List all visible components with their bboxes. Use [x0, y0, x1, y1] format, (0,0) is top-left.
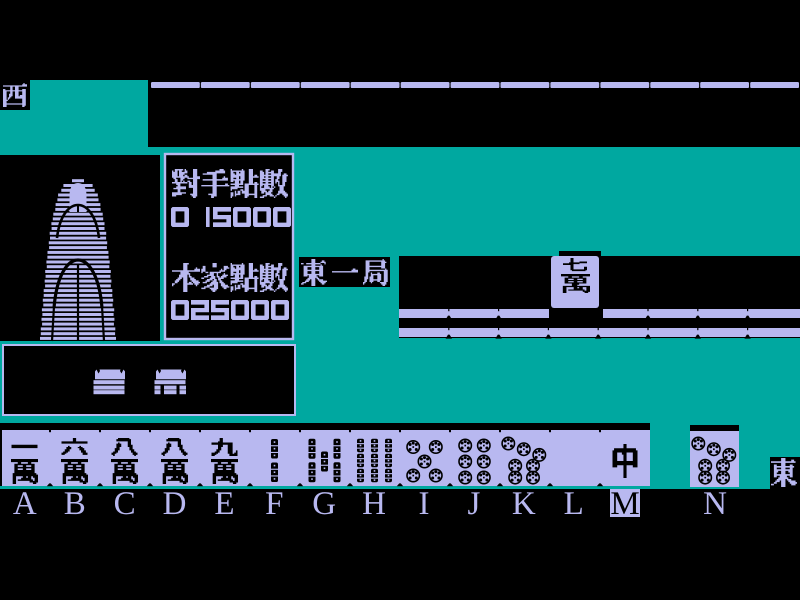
svg-text:K: K — [512, 486, 536, 522]
svg-text:J: J — [467, 486, 480, 522]
svg-text:F: F — [265, 486, 283, 522]
svg-text:H: H — [362, 486, 386, 522]
svg-text:M: M — [610, 486, 639, 522]
svg-text:G: G — [312, 486, 336, 522]
svg-text:L: L — [564, 486, 584, 522]
svg-text:D: D — [163, 486, 187, 522]
svg-text:B: B — [64, 486, 86, 522]
svg-text:E: E — [214, 486, 234, 522]
svg-text:A: A — [13, 486, 37, 522]
svg-text:N: N — [703, 486, 727, 522]
svg-text:I: I — [419, 486, 430, 522]
svg-text:C: C — [114, 486, 136, 522]
